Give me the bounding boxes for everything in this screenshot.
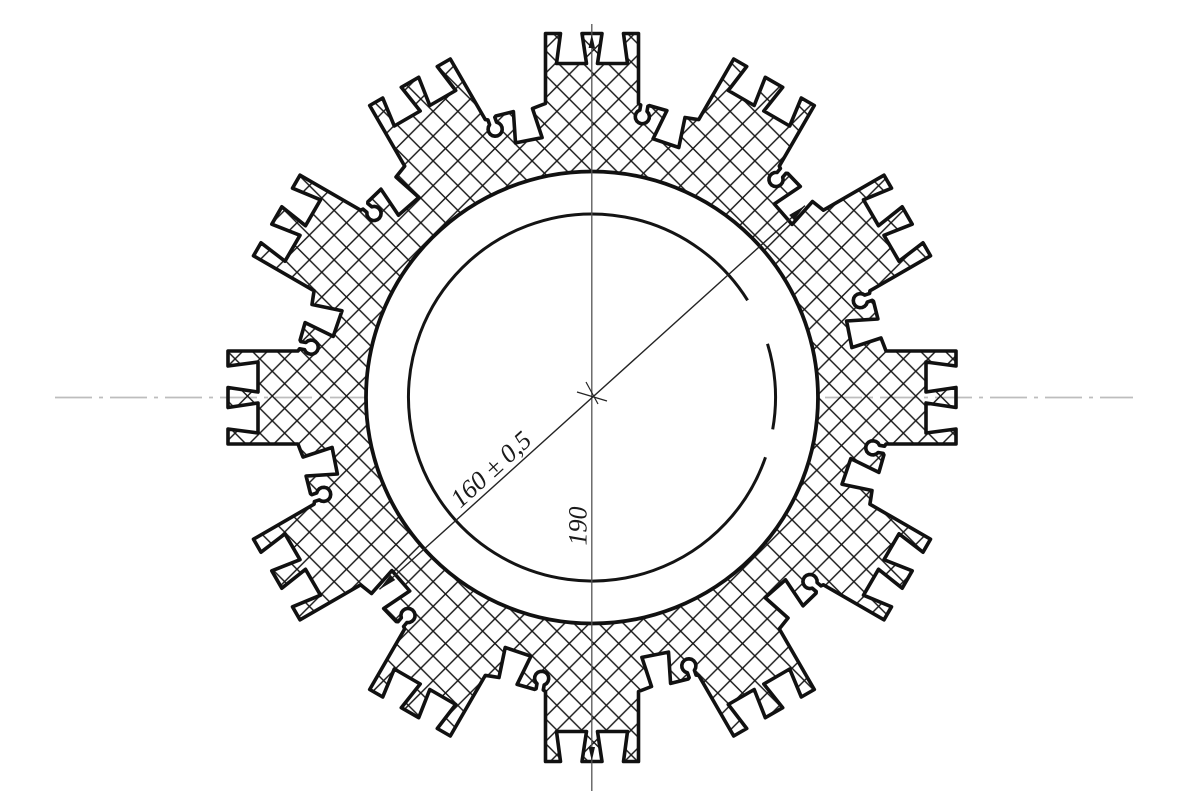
svg-text:190: 190 [564, 507, 593, 546]
